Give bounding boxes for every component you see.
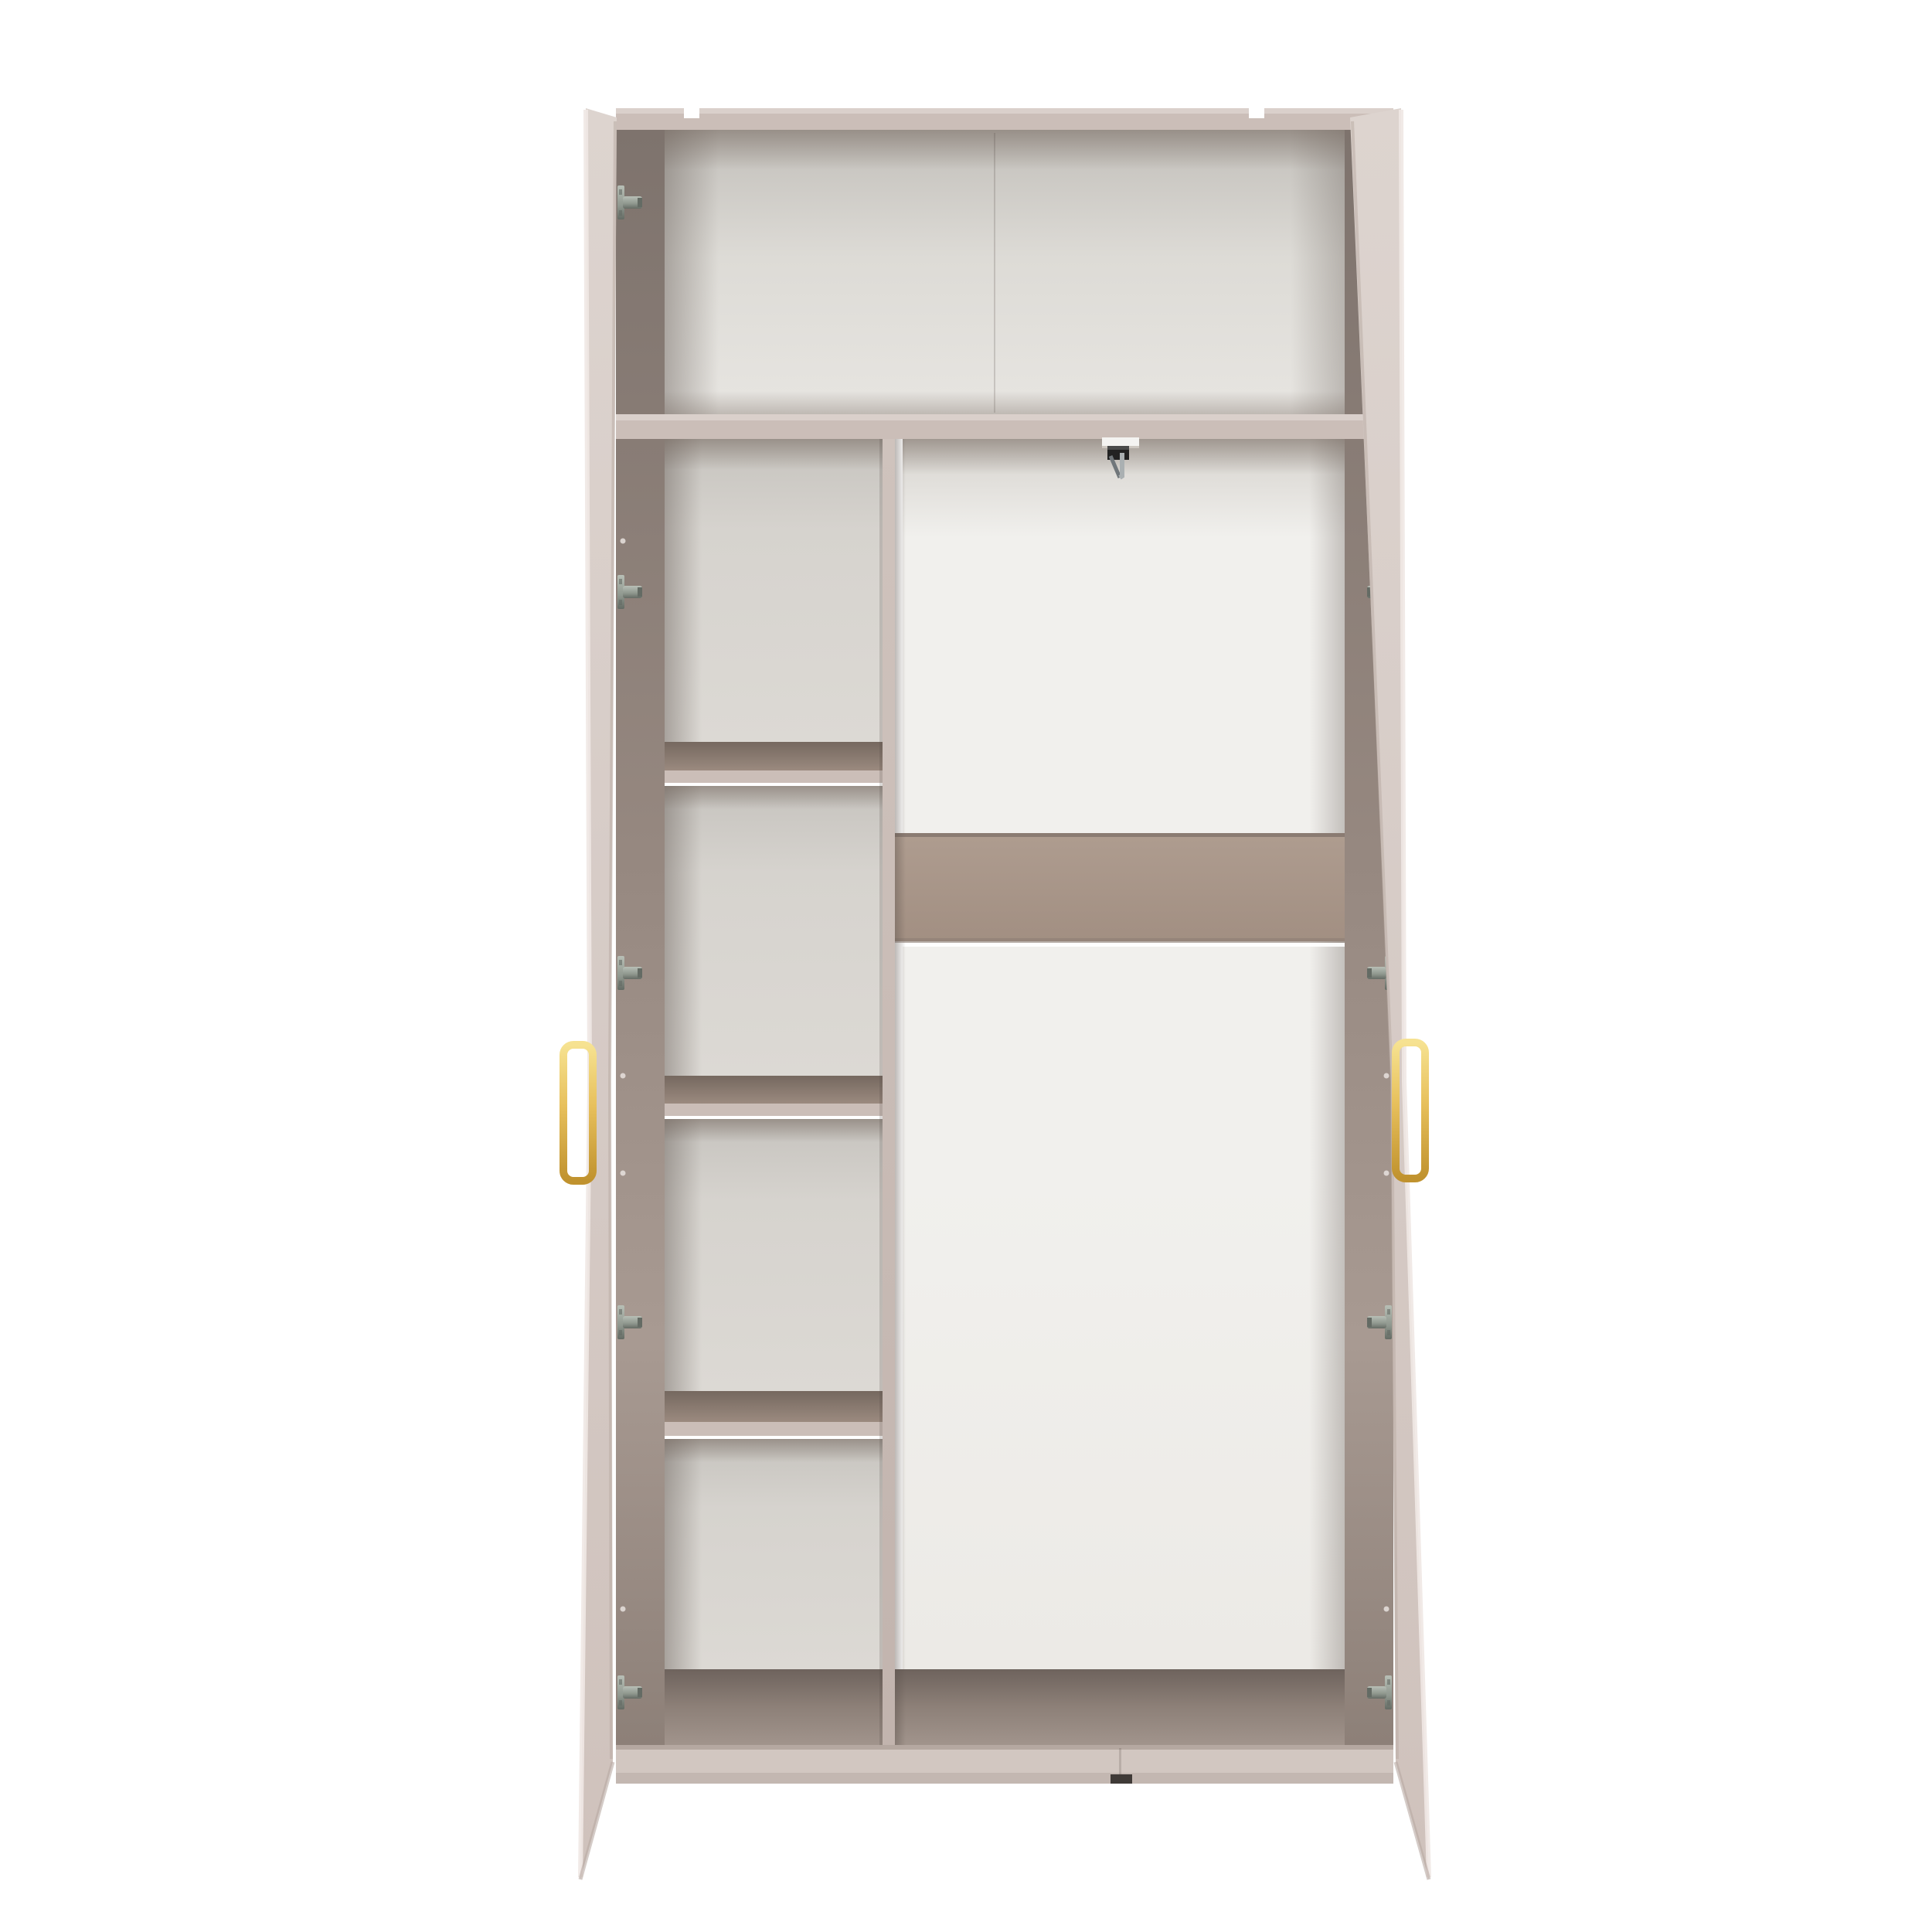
plinth-lower-shade [616,1773,1393,1784]
cubby-shelf-1-light-line [665,783,883,786]
left-cubby-column [665,439,883,1669]
divider-left-seam [879,439,883,1745]
screw-cap [621,1073,626,1079]
cubby-shelf-3-recess [665,1391,883,1422]
divider-front-edge [883,439,895,1745]
hanging-compartment-back-panel [903,439,1345,1669]
cubby-shelf-2-light-line [665,1116,883,1119]
cabinet-floor-shadow [665,1669,1345,1745]
screw-cap [1384,1607,1389,1612]
top-panel [616,108,1393,130]
top-shelf-edge [616,420,1393,439]
plinth-notch [1111,1774,1132,1784]
cubby-2-top-shadow [665,786,883,809]
cubby-4-top-shadow [665,1439,883,1462]
cubby-1-wall-shadow [665,439,702,742]
screw-cap [621,1171,626,1176]
back-panel-seam [994,133,995,413]
screw-cap [1384,1073,1389,1079]
cubby-shelf-1-recess [665,742,883,770]
cubby-shelf-3-edge [665,1422,883,1436]
top-compartment-ceiling-shadow [665,130,1345,170]
wardrobe-render [0,0,1932,1932]
top-panel-notch-right [1249,108,1264,118]
cubby-3-top-shadow [665,1119,883,1142]
wardrobe-product-image: Product render of a tall open two-door w… [0,0,1932,1932]
screw-cap [621,1607,626,1612]
plinth-top-line [616,1745,1393,1750]
plinth-seam [1119,1748,1121,1774]
plinth [616,1745,1393,1784]
cubby-4-wall-shadow [665,1439,702,1669]
support-rail-face [895,836,1345,941]
hook-wire [1120,453,1122,478]
cubby-3-wall-shadow [665,1119,702,1391]
cubby-1-top-shadow [665,439,883,470]
divider-right-shadow [895,439,906,1745]
support-rail-top-line [895,833,1345,837]
hanging-compartment [895,439,1345,1669]
cubby-shelf-1-edge [665,770,883,783]
cubby-shelf-2 [665,1076,883,1119]
top-compartment-left-shadow [665,130,719,414]
top-shelf-highlight [616,414,1393,420]
cubby-shelf-1 [665,742,883,786]
hook-housing-highlight [1107,446,1129,450]
hanging-compartment-right-shadow [1309,439,1345,1669]
top-compartment-back-panel [665,130,1345,414]
top-compartment-right-shadow [1291,130,1345,414]
cubby-shelf-2-recess [665,1076,883,1104]
cubby-2-wall-shadow [665,786,702,1076]
support-rail-bottom-line [895,938,1345,943]
screw-cap [1384,1171,1389,1176]
top-panel-notch-left [684,108,699,118]
cubby-shelf-3-light-line [665,1436,883,1439]
support-rail-light-line [895,943,1345,947]
screw-cap [621,539,626,544]
top-panel-highlight [616,108,1393,114]
top-shelf [616,414,1393,439]
support-rail-band [895,833,1345,947]
cubby-shelf-3 [665,1391,883,1439]
left-side-wall [616,130,665,1745]
top-compartment-floor-shadow [665,391,1345,414]
top-compartment [665,130,1345,414]
divider-panel [879,439,906,1745]
cubby-shelf-2-edge [665,1104,883,1116]
product-image-stage: Product render of a tall open two-door w… [0,0,1932,1932]
